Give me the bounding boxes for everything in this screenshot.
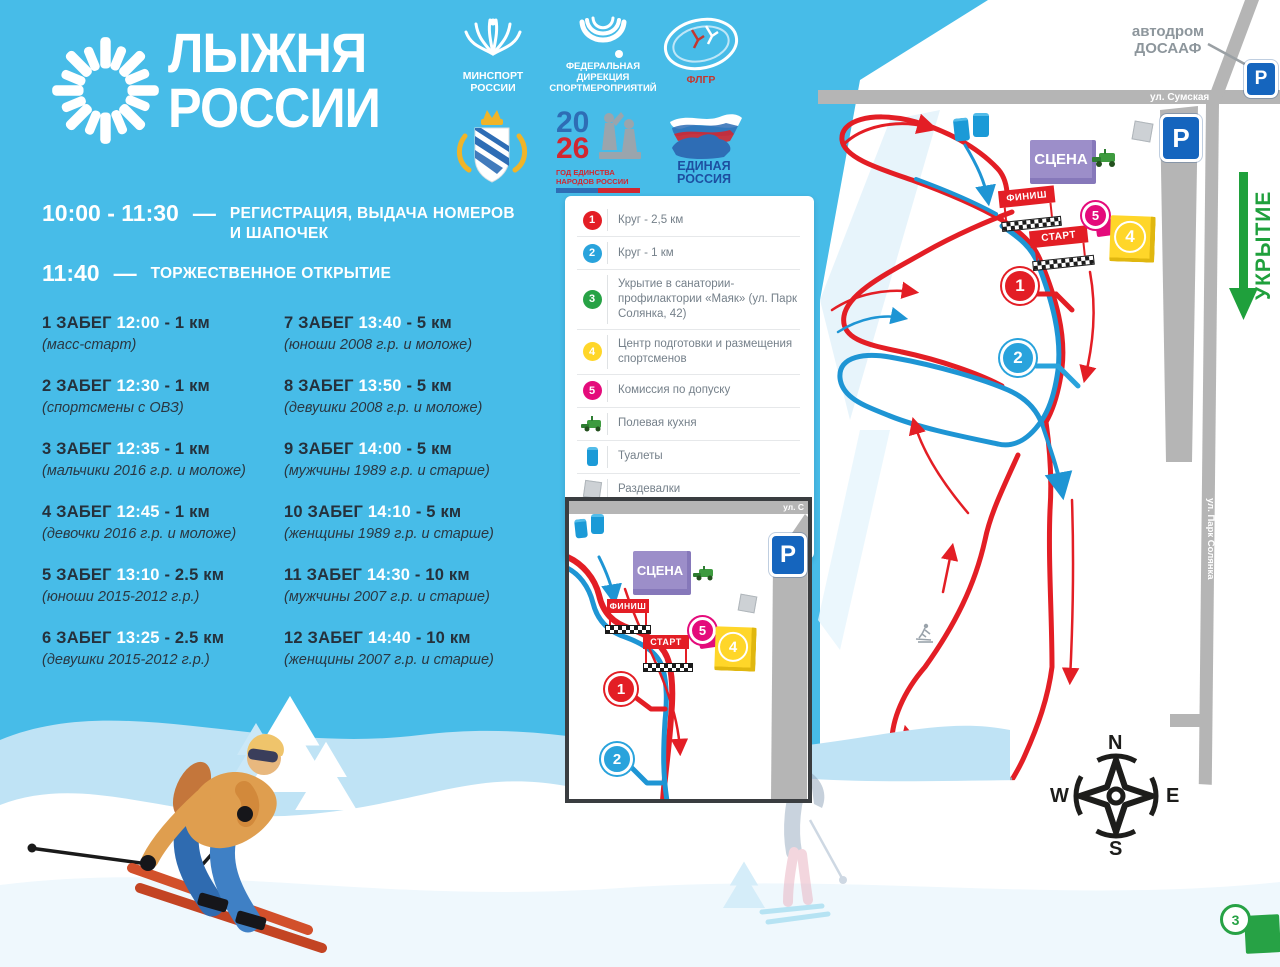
race-desc: (масс-старт): [42, 337, 287, 353]
year-26: 26: [556, 136, 589, 162]
flgr-rings-icon: [658, 12, 744, 74]
start-area-inset-map: ул. С P СЦЕНА ФИНИШ СТАРТ 5 4 1 2: [565, 497, 812, 803]
race-dist: - 1 км: [164, 377, 210, 395]
race-dist: - 10 км: [416, 629, 471, 647]
compass-s: S: [1109, 838, 1122, 861]
race-time: 12:00: [116, 314, 159, 332]
compass: N W E S: [1064, 744, 1168, 848]
flag-bar-icon: [556, 188, 640, 193]
race-time: 12:30: [116, 377, 159, 395]
title-line1: ЛЫЖНЯ: [168, 26, 380, 81]
race-item: 10 ЗАБЕГ 14:10 - 5 км (женщины 1989 г.р.…: [284, 503, 529, 542]
stage-box-inset: СЦЕНА: [633, 551, 691, 595]
legend-text: Полевая кухня: [607, 413, 697, 435]
race-time: 14:00: [358, 440, 401, 458]
finish-gate-inset: ФИНИШ: [607, 599, 653, 634]
race-dist: - 2.5 км: [164, 566, 224, 584]
compass-rose-icon: [1064, 744, 1168, 848]
schedule-label-line: И ШАПОЧЕК: [230, 224, 515, 244]
marker-lap-25: 1: [605, 673, 637, 705]
er-caption-2: РОССИЯ: [662, 173, 746, 186]
lap-25-badge: 1: [583, 211, 602, 230]
race-item: 1 ЗАБЕГ 12:00 - 1 км (масс-старт): [42, 314, 287, 353]
bowl-icon: [574, 16, 632, 62]
race-item: 8 ЗАБЕГ 13:50 - 5 км (девушки 2008 г.р. …: [284, 377, 529, 416]
race-desc: (женщины 2007 г.р. и старше): [284, 652, 529, 668]
finish-line: [605, 625, 651, 634]
marker-lap-25: 1: [1002, 268, 1038, 304]
race-item: 7 ЗАБЕГ 13:40 - 5 км (юноши 2008 г.р. и …: [284, 314, 529, 353]
shelter-badge: 3: [583, 290, 602, 309]
race-dist: - 1 км: [164, 503, 210, 521]
race-time: 13:50: [358, 377, 401, 395]
race-name: 11 ЗАБЕГ: [284, 566, 362, 584]
legend-text: Комиссия по допуску: [607, 380, 730, 402]
race-time: 14:40: [368, 629, 411, 647]
dash: —: [114, 260, 137, 287]
race-desc: (спортсмены с ОВЗ): [42, 400, 287, 416]
minsport-caption-1: МИНСПОРТ: [448, 70, 538, 82]
athlete-center-box: 4: [1109, 215, 1156, 263]
legend-text: Круг - 1 км: [607, 242, 674, 264]
race-time: 13:25: [116, 629, 159, 647]
toilet-icon: [574, 518, 588, 538]
logo-minsport: МИНСПОРТ РОССИИ: [448, 12, 538, 94]
race-dist: - 5 км: [406, 440, 452, 458]
race-dist: - 5 км: [416, 503, 462, 521]
race-desc: (женщины 1989 г.р. и старше): [284, 526, 529, 542]
race-name: 5 ЗАБЕГ: [42, 566, 112, 584]
marker-shelter: 3: [1220, 904, 1251, 935]
parking-sign-inset: P: [769, 533, 807, 577]
race-desc: (юноши 2008 г.р. и моложе): [284, 337, 529, 353]
page-title: ЛЫЖНЯ РОССИИ: [168, 26, 380, 136]
legend-text: Туалеты: [607, 446, 663, 468]
race-name: 3 ЗАБЕГ: [42, 440, 112, 458]
compass-e: E: [1166, 785, 1179, 808]
title-line2: РОССИИ: [168, 81, 380, 136]
race-name: 4 ЗАБЕГ: [42, 503, 112, 521]
schedule-label-line: ТОРЖЕСТВЕННОЕ ОТКРЫТИЕ: [151, 264, 392, 284]
race-dist: - 1 км: [164, 314, 210, 332]
schedule-row-opening: 11:40 — ТОРЖЕСТВЕННОЕ ОТКРЫТИЕ: [42, 260, 515, 287]
race-desc: (девушки 2008 г.р. и моложе): [284, 400, 529, 416]
bear-flag-icon: [664, 108, 744, 160]
logo-edinaya-rossiya: ЕДИНАЯ РОССИЯ: [662, 108, 746, 186]
legend-text: Круг - 2,5 км: [607, 209, 683, 231]
race-time: 13:40: [358, 314, 401, 332]
schedule-time: 11:40: [42, 260, 100, 287]
commission-badge: 5: [583, 381, 602, 400]
race-item: 2 ЗАБЕГ 12:30 - 1 км (спортсмены с ОВЗ): [42, 377, 287, 416]
race-name: 7 ЗАБЕГ: [284, 314, 354, 332]
race-name: 1 ЗАБЕГ: [42, 314, 112, 332]
schedule-time: 10:00 - 11:30: [42, 200, 179, 227]
race-time: 12:45: [116, 503, 159, 521]
marker-lap-1: 2: [601, 743, 633, 775]
start-gate-inset: СТАРТ: [643, 635, 693, 671]
race-item: 9 ЗАБЕГ 14:00 - 5 км (мужчины 1989 г.р. …: [284, 440, 529, 479]
compass-w: W: [1050, 785, 1069, 808]
marker-commission: 5: [1082, 202, 1109, 229]
toilet-icon: [591, 514, 604, 534]
fds-caption-3: СПОРТМЕРОПРИЯТИЙ: [548, 84, 658, 95]
race-name: 8 ЗАБЕГ: [284, 377, 354, 395]
race-dist: - 1 км: [164, 440, 210, 458]
street-short-label: ул. С: [783, 502, 804, 512]
race-name: 2 ЗАБЕГ: [42, 377, 112, 395]
race-time: 13:10: [116, 566, 159, 584]
race-name: 12 ЗАБЕГ: [284, 629, 363, 647]
year2026-caption-2: НАРОДОВ РОССИИ: [556, 177, 652, 186]
race-dist: - 5 км: [406, 377, 452, 395]
race-desc: (мальчики 2016 г.р. и моложе): [42, 463, 287, 479]
year2026-caption-1: ГОД ЕДИНСТВА: [556, 168, 652, 177]
race-name: 10 ЗАБЕГ: [284, 503, 363, 521]
schedule-row-registration: 10:00 - 11:30 — РЕГИСТРАЦИЯ, ВЫДАЧА НОМЕ…: [42, 200, 515, 244]
minsport-caption-2: РОССИИ: [448, 82, 538, 94]
logo-kursk-emblem: [452, 106, 532, 186]
start-banner: СТАРТ: [643, 635, 689, 649]
lap-1-badge: 2: [583, 244, 602, 263]
race-name: 6 ЗАБЕГ: [42, 629, 112, 647]
street-solyanka-label: ул. Парк Солянка: [1205, 498, 1216, 580]
field-kitchen-icon: [579, 416, 605, 432]
race-dist: - 5 км: [406, 314, 452, 332]
marker-lap-1: 2: [1000, 340, 1036, 376]
logo-2026: 20 26 ГОД ЕДИНСТВА НАРОДОВ РОССИИ: [556, 110, 652, 193]
race-item: 4 ЗАБЕГ 12:45 - 1 км (девочки 2016 г.р. …: [42, 503, 287, 542]
race-desc: (мужчины 2007 г.р. и старше): [284, 589, 529, 605]
finish-banner: ФИНИШ: [607, 599, 649, 613]
center-badge: 4: [583, 342, 602, 361]
logo-flgr: ФЛГР: [656, 12, 746, 86]
marker-commission: 5: [689, 617, 716, 644]
compass-n: N: [1108, 732, 1122, 755]
eagle-icon: [461, 12, 525, 70]
race-item: 11 ЗАБЕГ 14:30 - 10 км (мужчины 2007 г.р…: [284, 566, 529, 605]
monument-icon: [593, 110, 645, 166]
flgr-caption: ФЛГР: [656, 74, 746, 86]
coat-of-arms-icon: [455, 106, 529, 186]
schedule: 10:00 - 11:30 — РЕГИСТРАЦИЯ, ВЫДАЧА НОМЕ…: [42, 200, 515, 303]
marker-center: 4: [718, 631, 749, 662]
logo-fds: ФЕДЕРАЛЬНАЯ ДИРЕКЦИЯ СПОРТМЕРОПРИЯТИЙ: [548, 16, 658, 95]
race-desc: (мужчины 1989 г.р. и старше): [284, 463, 529, 479]
poster: ЛЫЖНЯ РОССИИ МИНСПОРТ РОССИИ ФЕДЕРАЛЬНА: [0, 0, 1280, 967]
dash: —: [193, 200, 216, 227]
start-line: [643, 663, 693, 672]
race-name: 9 ЗАБЕГ: [284, 440, 354, 458]
marker-center: 4: [1114, 220, 1147, 253]
race-item: 3 ЗАБЕГ 12:35 - 1 км (мальчики 2016 г.р.…: [42, 440, 287, 479]
race-time: 14:30: [367, 566, 410, 584]
field-kitchen-icon: [691, 565, 717, 582]
race-desc: (девушки 2015-2012 г.р.): [42, 652, 287, 668]
race-item: 6 ЗАБЕГ 13:25 - 2.5 км (девушки 2015-201…: [42, 629, 287, 668]
race-time: 14:10: [368, 503, 411, 521]
race-dist: - 10 км: [415, 566, 470, 584]
toilet-icon: [587, 447, 598, 466]
race-time: 12:35: [116, 440, 159, 458]
lyzhnya-rossii-logo-icon: [48, 28, 163, 153]
race-item: 12 ЗАБЕГ 14:40 - 10 км (женщины 2007 г.р…: [284, 629, 529, 668]
race-dist: - 2.5 км: [164, 629, 224, 647]
locker-icon: [738, 594, 758, 614]
marker-connectors: [740, 0, 1280, 500]
race-item: 5 ЗАБЕГ 13:10 - 2.5 км (юноши 2015-2012 …: [42, 566, 287, 605]
race-desc: (девочки 2016 г.р. и моложе): [42, 526, 287, 542]
schedule-label-line: РЕГИСТРАЦИЯ, ВЫДАЧА НОМЕРОВ: [230, 204, 515, 224]
race-desc: (юноши 2015-2012 г.р.): [42, 589, 287, 605]
athlete-center-box: 4: [714, 626, 757, 671]
